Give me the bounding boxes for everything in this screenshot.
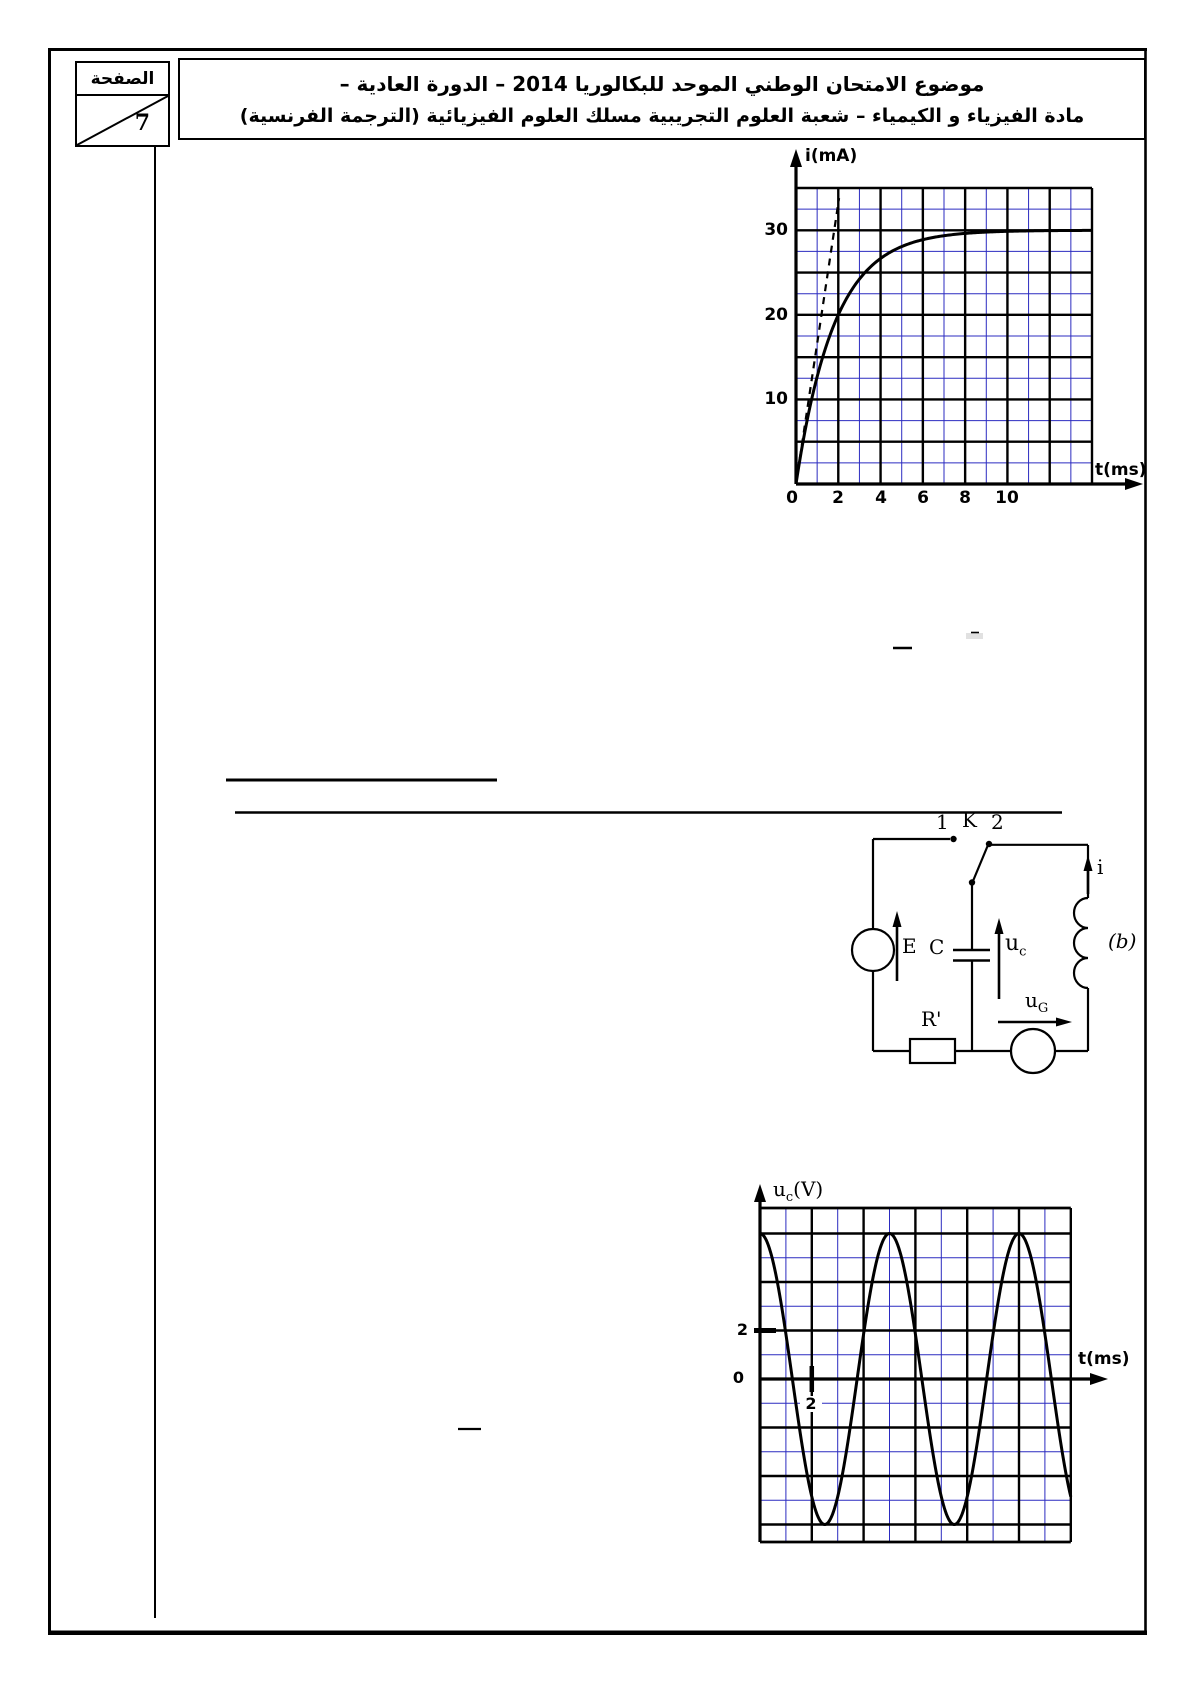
chart2-x-axis-label: t(ms): [1078, 1351, 1130, 1368]
chart1-y-tick-10: 10: [756, 391, 788, 408]
exam-page: الصفحة 7 موضوع الامتحان الوطني الموحد لل…: [0, 0, 1192, 1684]
chart1-x-tick-6: 6: [911, 490, 935, 507]
page-label: الصفحة: [77, 63, 168, 96]
chart1-x-tick-4: 4: [869, 490, 893, 507]
header-line-2: مادة الفيزياء و الكيمياء – شعبة العلوم ا…: [240, 105, 1084, 127]
chart1-y-tick-20: 20: [756, 307, 788, 324]
chart1-x-tick-2: 2: [826, 490, 850, 507]
page-number-box: الصفحة 7: [75, 61, 170, 147]
chart2-x-tick-2: 2: [800, 1396, 822, 1412]
chart1-y-tick-30: 30: [756, 222, 788, 239]
diagonal-line: [77, 96, 168, 145]
capacitor-label: C: [929, 937, 944, 957]
chart1-x-tick-8: 8: [953, 490, 977, 507]
chart1-x-axis-label: t(ms): [1095, 462, 1147, 479]
page-number: 7: [135, 110, 150, 136]
chart2-y-tick-2: 2: [720, 1322, 748, 1338]
chart1-x-tick-0: 0: [780, 490, 804, 507]
chart1-x-tick-10: 10: [995, 490, 1019, 507]
switch-label: K: [962, 810, 977, 830]
page-number-cell: 7: [77, 96, 168, 145]
coil-label: (b): [1108, 931, 1136, 951]
switch-position-2-label: 2: [991, 812, 1004, 832]
uc-voltage-label: uc: [1005, 933, 1026, 958]
source-label: E: [902, 936, 917, 956]
header-line-1: موضوع الامتحان الوطني الموحد للبكالوريا …: [340, 72, 985, 96]
chart2-origin-label: 0: [716, 1370, 744, 1386]
figures-canvas: [0, 0, 1192, 1684]
chart2-y-axis-label: uc(V): [773, 1179, 823, 1204]
resistor-label: R': [921, 1009, 942, 1029]
ug-voltage-label: uG: [1025, 990, 1048, 1015]
switch-position-1-label: 1: [936, 812, 949, 832]
exam-header: موضوع الامتحان الوطني الموحد للبكالوريا …: [178, 58, 1146, 140]
current-label: i: [1097, 857, 1103, 877]
chart1-y-axis-label: i(mA): [805, 148, 857, 165]
